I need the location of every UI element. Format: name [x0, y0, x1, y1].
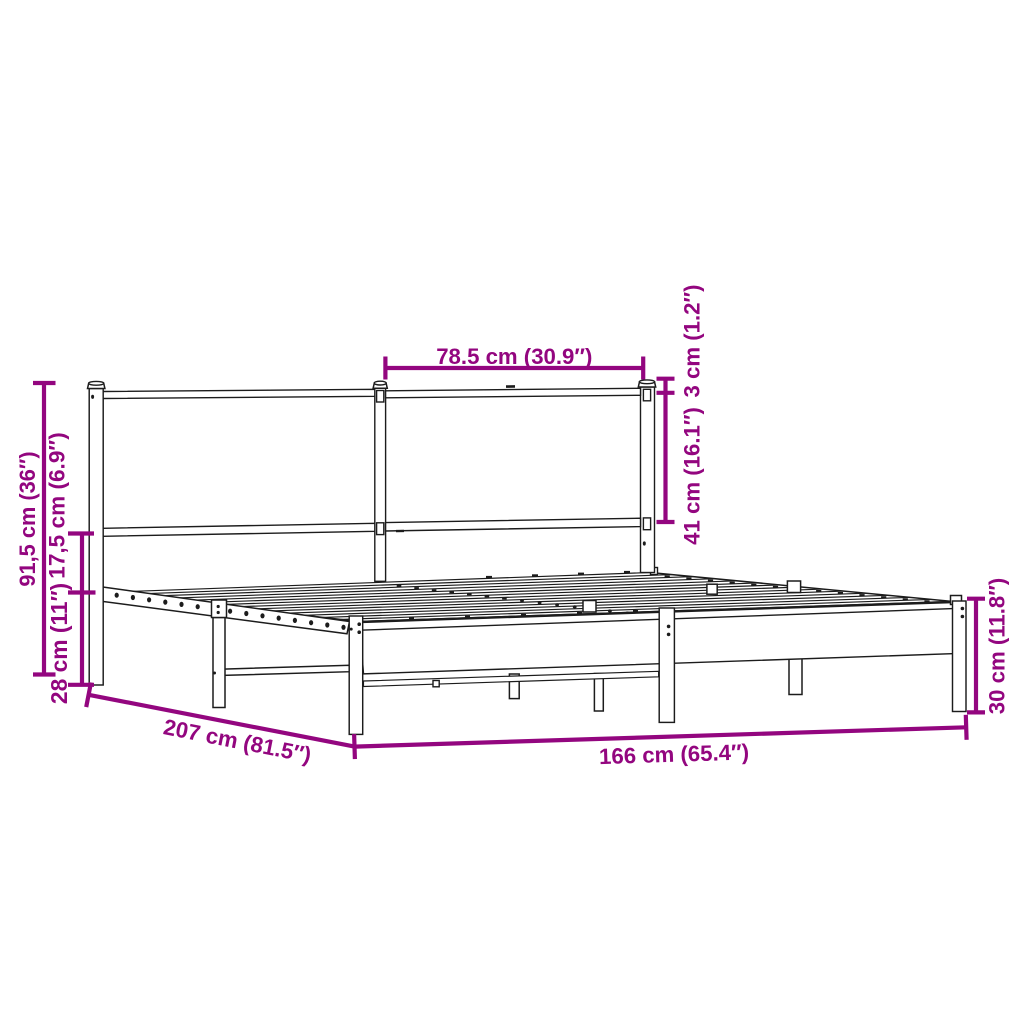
svg-text:30 cm (11.8″): 30 cm (11.8″)	[984, 578, 1009, 714]
svg-text:91,5 cm (36″): 91,5 cm (36″)	[15, 451, 40, 586]
svg-text:28 cm (11″): 28 cm (11″)	[46, 583, 72, 704]
svg-text:17,5 cm (6.9″): 17,5 cm (6.9″)	[45, 432, 70, 578]
svg-text:78.5 cm (30.9″): 78.5 cm (30.9″)	[436, 344, 592, 369]
svg-text:3 cm (1.2″): 3 cm (1.2″)	[679, 285, 704, 398]
svg-text:41 cm (16.1″): 41 cm (16.1″)	[679, 407, 704, 545]
svg-text:166 cm (65.4″): 166 cm (65.4″)	[599, 739, 750, 769]
